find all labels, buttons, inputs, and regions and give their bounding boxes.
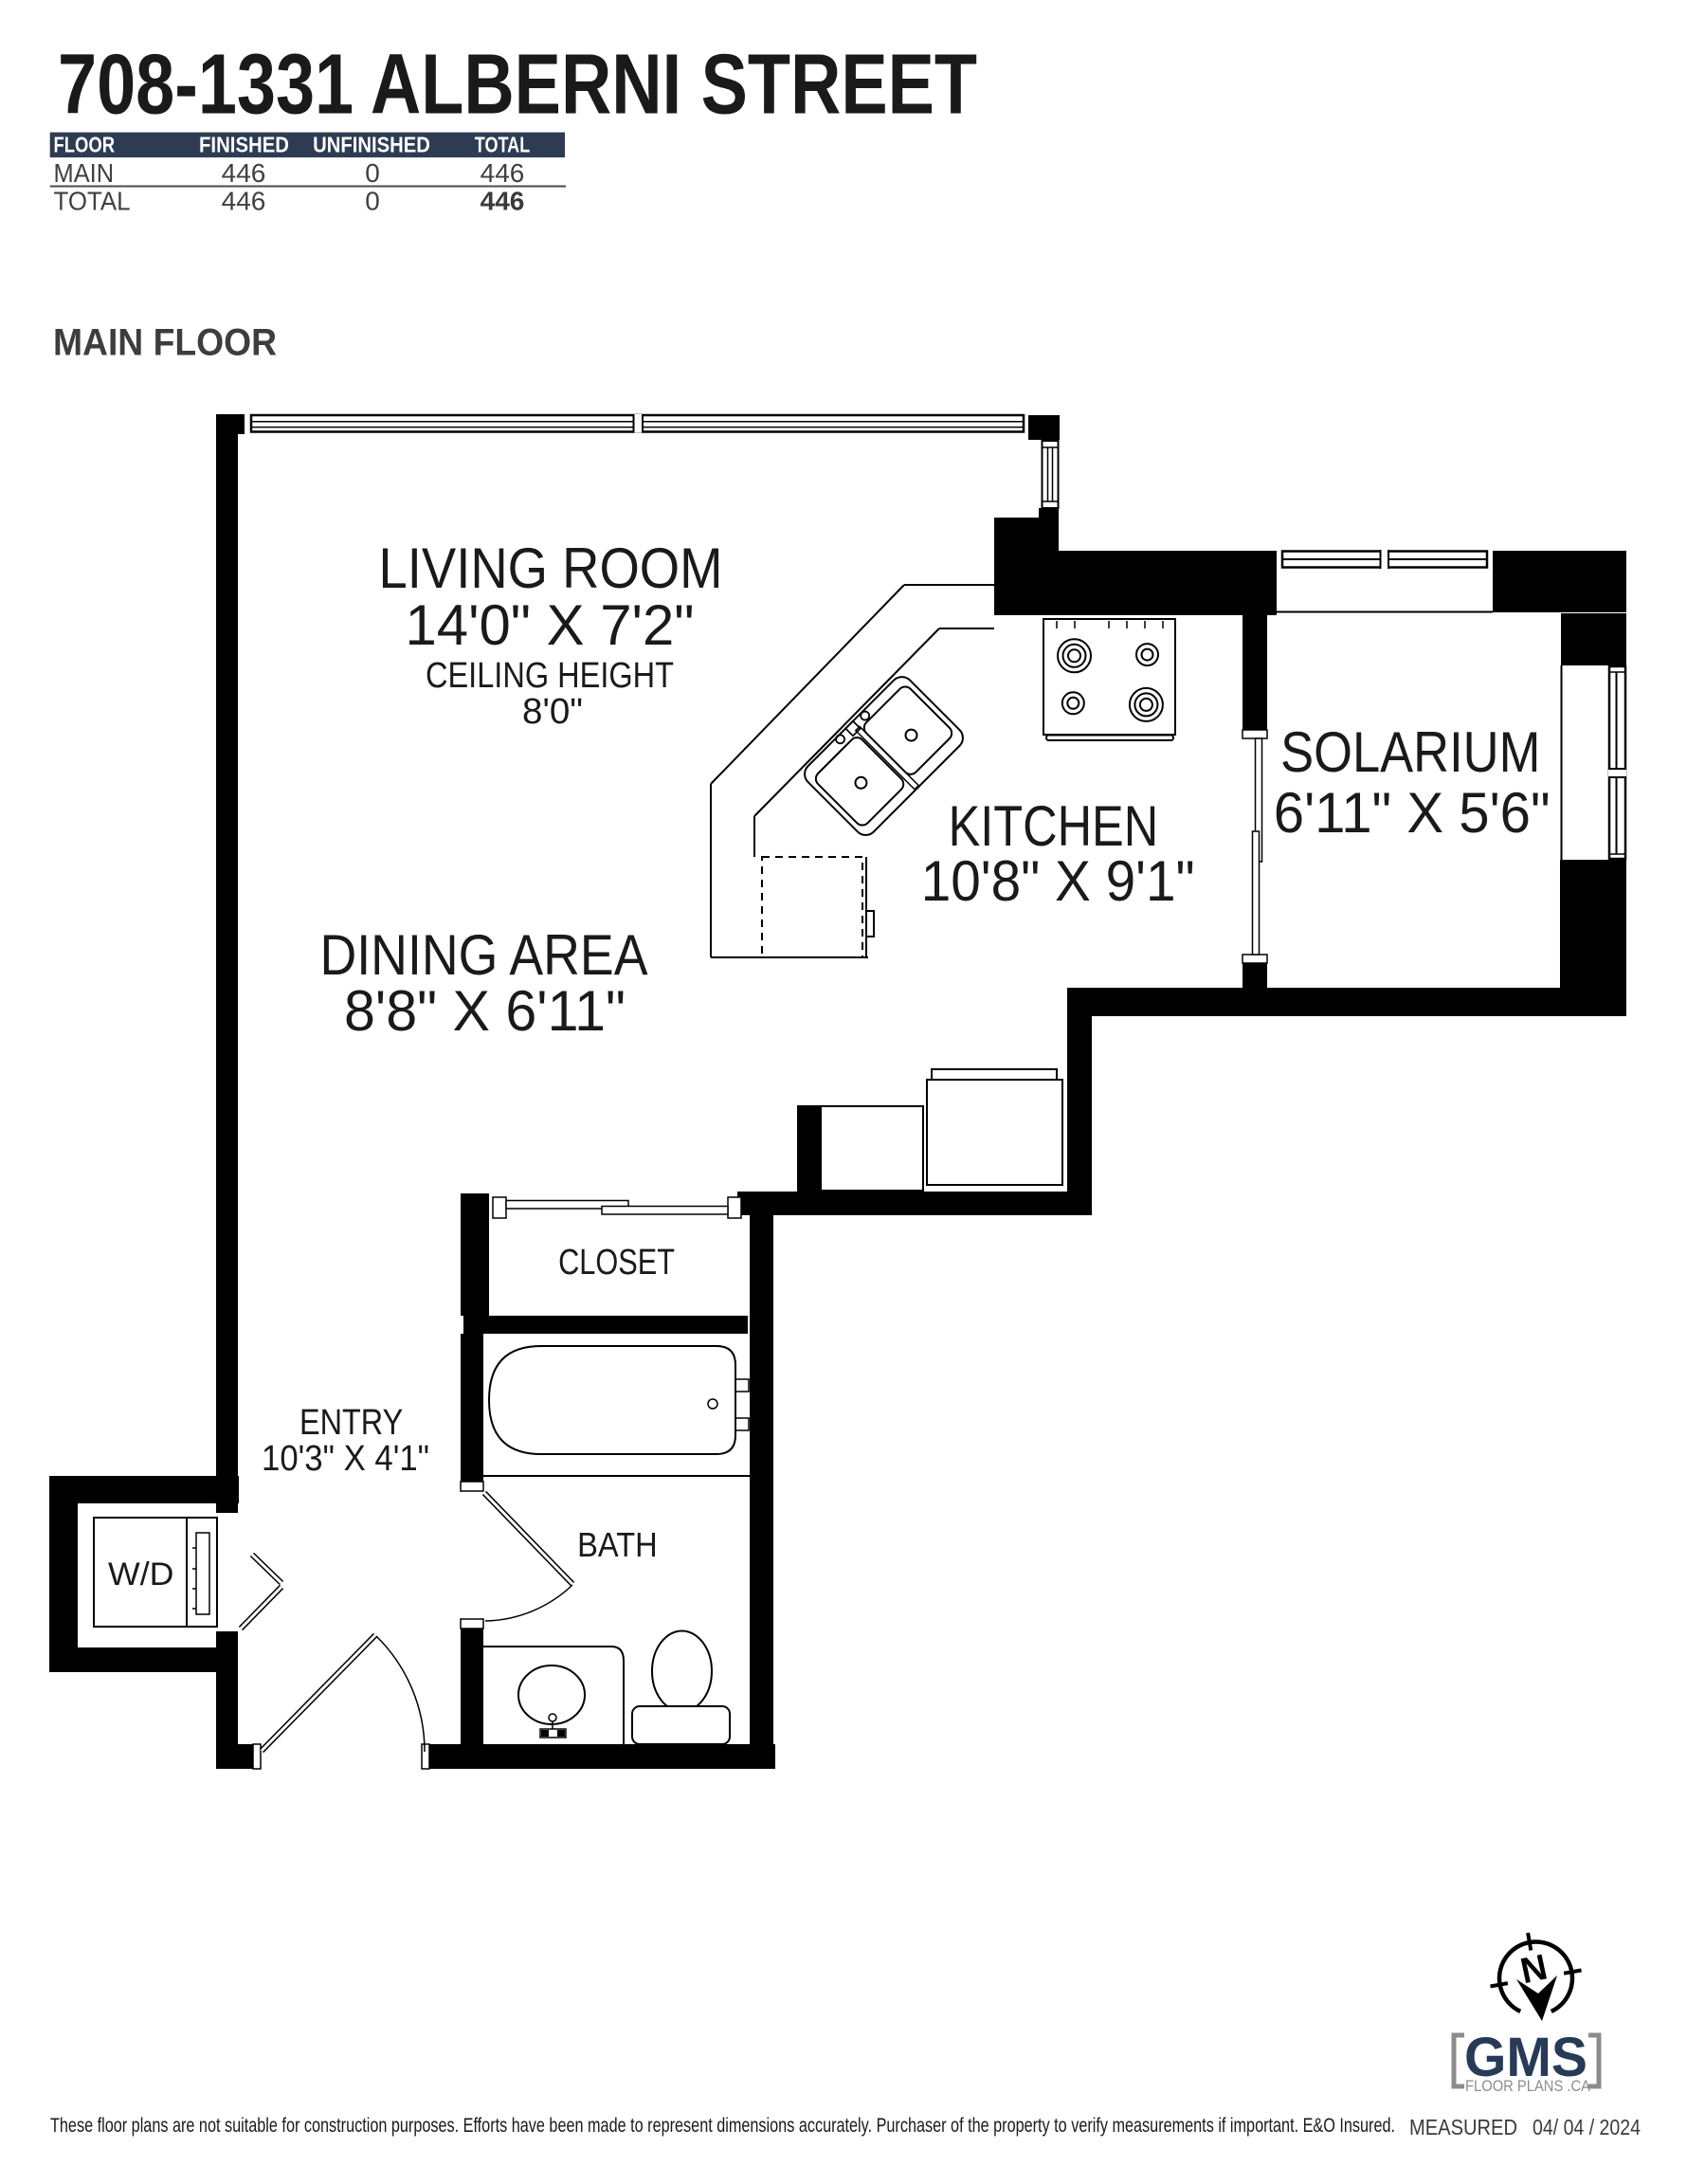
svg-text:These floor plans are not suit: These floor plans are not suitable for c…	[50, 2114, 1395, 2137]
svg-text:446: 446	[222, 187, 266, 216]
svg-text:0: 0	[365, 158, 380, 188]
svg-text:04/ 04 / 2024: 04/ 04 / 2024	[1533, 2115, 1641, 2139]
svg-text:TOTAL: TOTAL	[54, 187, 131, 216]
svg-text:MEASURED: MEASURED	[1409, 2115, 1517, 2139]
svg-text:SOLARIUM: SOLARIUM	[1280, 720, 1540, 784]
svg-text:ENTRY: ENTRY	[299, 1403, 403, 1443]
svg-text:CEILING HEIGHT: CEILING HEIGHT	[426, 656, 674, 696]
svg-text:10'3" X 4'1": 10'3" X 4'1"	[262, 1439, 429, 1479]
svg-text:FLOOR PLANS .CA: FLOOR PLANS .CA	[1465, 2077, 1591, 2095]
svg-text:MAIN: MAIN	[54, 158, 115, 188]
svg-text:446: 446	[481, 158, 525, 188]
svg-text:446: 446	[481, 187, 525, 216]
svg-text:LIVING ROOM: LIVING ROOM	[379, 537, 723, 600]
svg-text:BATH: BATH	[577, 1525, 658, 1564]
svg-text:8'8" X 6'11": 8'8" X 6'11"	[344, 979, 626, 1043]
svg-text:FLOOR: FLOOR	[54, 133, 116, 157]
svg-text:UNFINISHED: UNFINISHED	[313, 133, 430, 157]
svg-text:W/D: W/D	[108, 1556, 173, 1592]
svg-text:14'0" X 7'2": 14'0" X 7'2"	[406, 593, 695, 657]
svg-text:10'8" X 9'1": 10'8" X 9'1"	[921, 849, 1195, 913]
svg-text:6'11" X 5'6": 6'11" X 5'6"	[1274, 781, 1551, 845]
svg-text:KITCHEN: KITCHEN	[949, 794, 1159, 858]
svg-text:CLOSET: CLOSET	[558, 1243, 675, 1283]
svg-text:DINING AREA: DINING AREA	[320, 923, 648, 987]
svg-text:8'0": 8'0"	[522, 692, 583, 732]
svg-text:708-1331 ALBERNI STREET: 708-1331 ALBERNI STREET	[58, 38, 977, 133]
svg-text:TOTAL: TOTAL	[475, 133, 531, 157]
svg-text:MAIN FLOOR: MAIN FLOOR	[53, 322, 277, 364]
svg-text:FINISHED: FINISHED	[199, 133, 289, 157]
svg-text:0: 0	[365, 187, 380, 216]
svg-text:446: 446	[222, 158, 266, 188]
